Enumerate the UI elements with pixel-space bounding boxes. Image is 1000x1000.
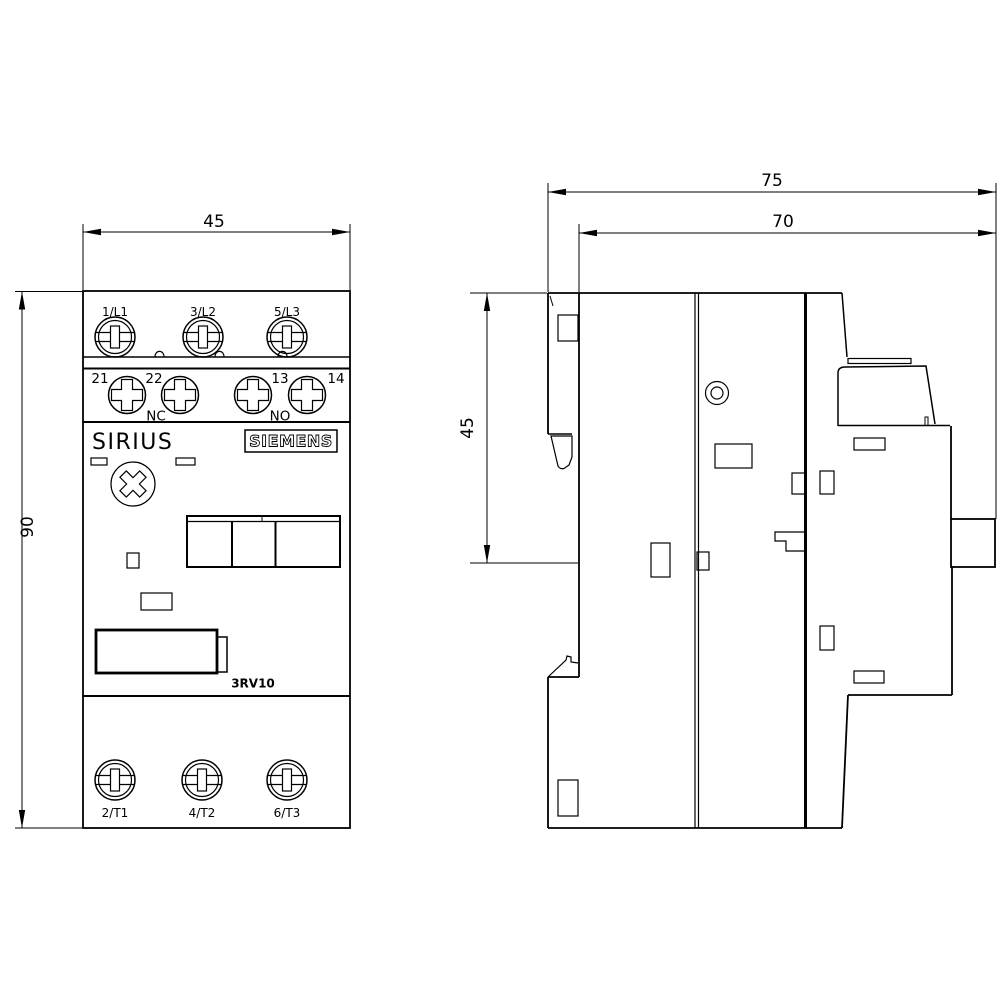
dimension-value-width: 45 <box>203 212 225 232</box>
side-recess <box>651 543 670 577</box>
test-button <box>141 593 172 610</box>
arrowhead-right <box>978 189 996 195</box>
dimension-drawing-svg: 45 90 1/L1 3/L2 5/L3 <box>0 0 1000 1000</box>
side-body-outline <box>548 293 995 828</box>
aux-screw <box>289 377 326 414</box>
model-label: 3RV10 <box>231 677 275 691</box>
front-body-outline <box>83 291 350 828</box>
marker-rect <box>91 458 107 465</box>
aux-terminal-number: 13 <box>271 371 288 387</box>
terminal-screw <box>95 317 135 357</box>
clip-tab <box>155 351 164 357</box>
clip-detail <box>550 296 553 306</box>
aux-no-label: NO <box>270 409 291 425</box>
terminal-screw <box>267 317 307 357</box>
marker-rect <box>176 458 195 465</box>
brand-label: SIRIUS <box>92 430 173 455</box>
front-view: 45 90 1/L1 3/L2 5/L3 <box>15 212 350 828</box>
switch-toggle <box>951 519 995 567</box>
vent-slot <box>820 626 834 650</box>
reset-button <box>96 630 227 673</box>
indicator-window <box>127 553 139 568</box>
aux-terminal-number: 14 <box>327 371 344 387</box>
aux-screw <box>235 377 272 414</box>
arrowhead-bottom <box>484 545 490 563</box>
aux-terminal-number: 21 <box>91 371 108 387</box>
front-panel: SIRIUS SIEMENS 3RV10 <box>91 430 340 691</box>
terminal-screw <box>182 760 222 800</box>
side-view: 75 70 45 <box>458 171 996 828</box>
side-dimension-mount-height: 45 <box>458 293 578 563</box>
aux-screw <box>109 377 146 414</box>
arrowhead-right <box>978 230 996 236</box>
front-lower-edge <box>842 695 848 828</box>
load-terminal-label: 6/T3 <box>274 806 301 820</box>
load-terminal-label: 4/T2 <box>189 806 216 820</box>
side-recess <box>715 444 752 468</box>
terminal-screw <box>267 760 307 800</box>
mounting-hole-outer <box>706 382 729 405</box>
front-load-terminal-block: 2/T1 4/T2 6/T3 <box>95 760 307 820</box>
rail-hook <box>548 656 578 677</box>
dial-top-plate <box>848 359 911 364</box>
logo-label: SIEMENS <box>249 432 333 451</box>
front-dimension-height: 90 <box>15 292 82 829</box>
arrowhead-right <box>332 229 350 235</box>
front-dimension-width: 45 <box>83 212 350 290</box>
load-terminal-label: 2/T1 <box>102 806 129 820</box>
front-aux-terminal-block: 21 22 13 14 NC NO <box>91 371 344 425</box>
side-dimension-body-depth: 70 <box>579 212 996 292</box>
dimension-value-height: 90 <box>18 516 38 538</box>
aux-screw <box>162 377 199 414</box>
terminal-screw <box>183 317 223 357</box>
aux-nc-label: NC <box>146 409 166 425</box>
step-detail <box>775 532 805 551</box>
arrowhead-left <box>548 189 566 195</box>
vent-slot <box>854 671 884 683</box>
arrowhead-left <box>83 229 101 235</box>
switch-window <box>187 516 340 567</box>
aux-terminal-number: 22 <box>145 371 162 387</box>
current-adjustment-dial <box>111 462 155 506</box>
top-chamfer <box>842 293 847 357</box>
vent-slot <box>820 471 834 494</box>
lower-recess <box>558 780 578 816</box>
front-line-terminal-block: 1/L1 3/L2 5/L3 <box>95 305 307 357</box>
dial-notch <box>925 417 928 425</box>
arrowhead-left <box>579 230 597 236</box>
vent-slot <box>854 438 885 450</box>
dial-side-profile <box>838 366 935 426</box>
latch-detail <box>792 473 805 494</box>
technical-drawing-page: 45 90 1/L1 3/L2 5/L3 <box>0 0 1000 1000</box>
dimension-value-mount-height: 45 <box>458 417 478 439</box>
mounting-hole-inner <box>711 387 723 399</box>
arrowhead-top <box>484 293 490 311</box>
terminal-screw <box>95 760 135 800</box>
arrowhead-bottom <box>19 810 25 828</box>
clip-recess <box>558 315 578 341</box>
din-clip-tab <box>551 436 572 469</box>
arrowhead-top <box>19 292 25 310</box>
side-details <box>651 382 885 684</box>
dimension-value-body-depth: 70 <box>772 212 794 232</box>
dimension-value-total-depth: 75 <box>761 171 783 191</box>
